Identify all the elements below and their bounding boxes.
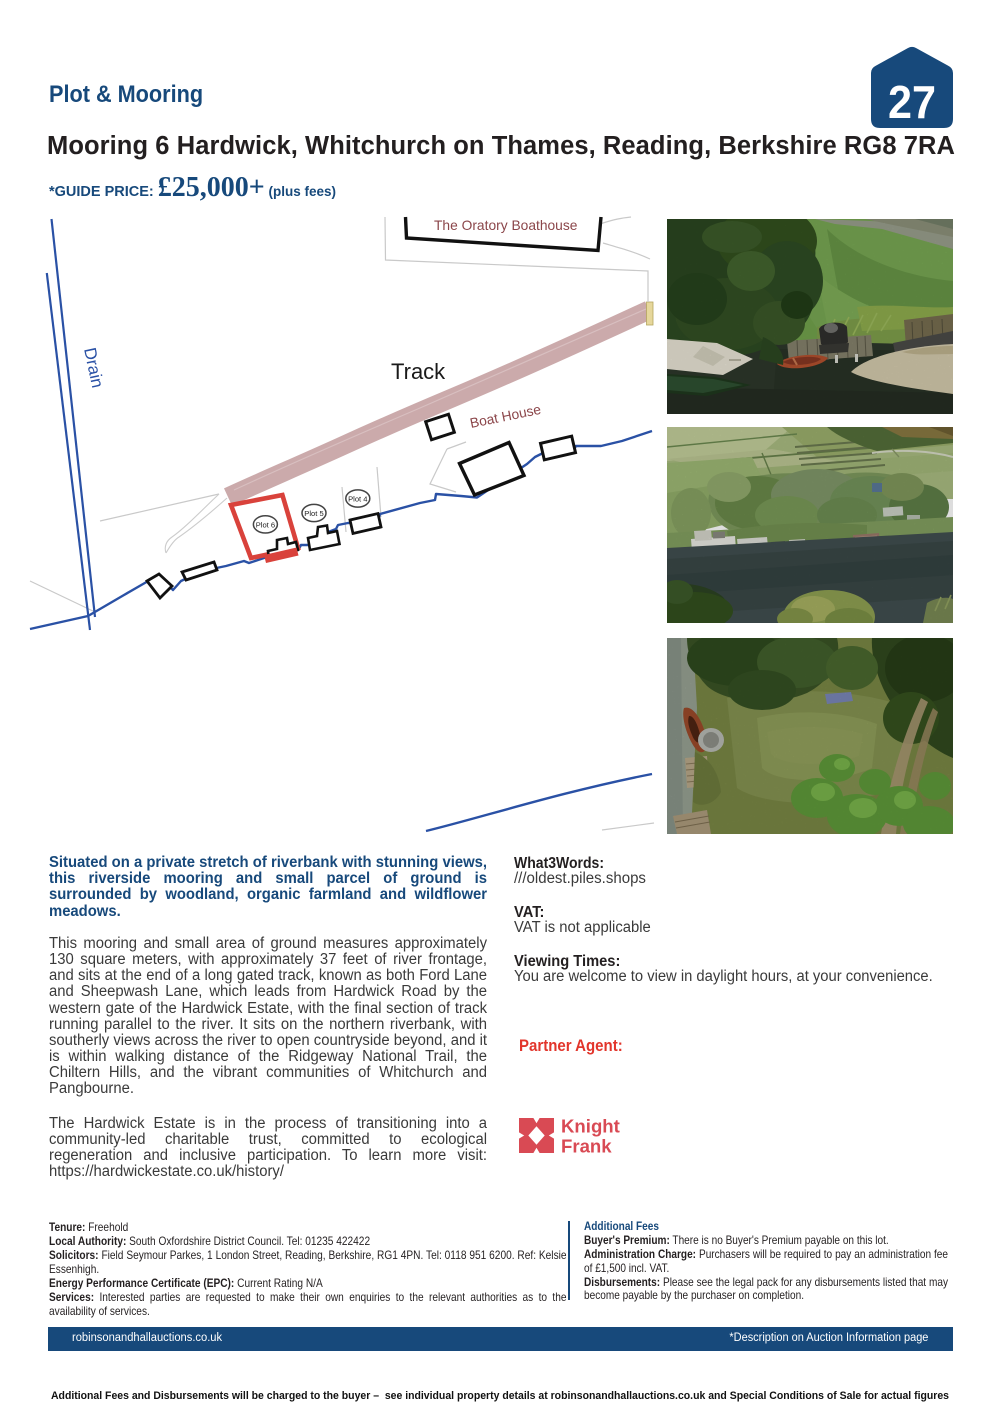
svg-text:Boat House: Boat House (469, 402, 543, 431)
svg-text:Plot 4: Plot 4 (348, 495, 367, 504)
svg-text:Track: Track (391, 359, 446, 384)
svg-text:Plot 5: Plot 5 (304, 509, 323, 518)
svg-text:Knight: Knight (561, 1117, 620, 1137)
svg-text:Drain: Drain (80, 346, 107, 390)
svg-text:Plot 6: Plot 6 (256, 520, 275, 529)
svg-text:The Oratory Boathouse: The Oratory Boathouse (434, 218, 578, 233)
svg-text:Frank: Frank (561, 1136, 612, 1157)
